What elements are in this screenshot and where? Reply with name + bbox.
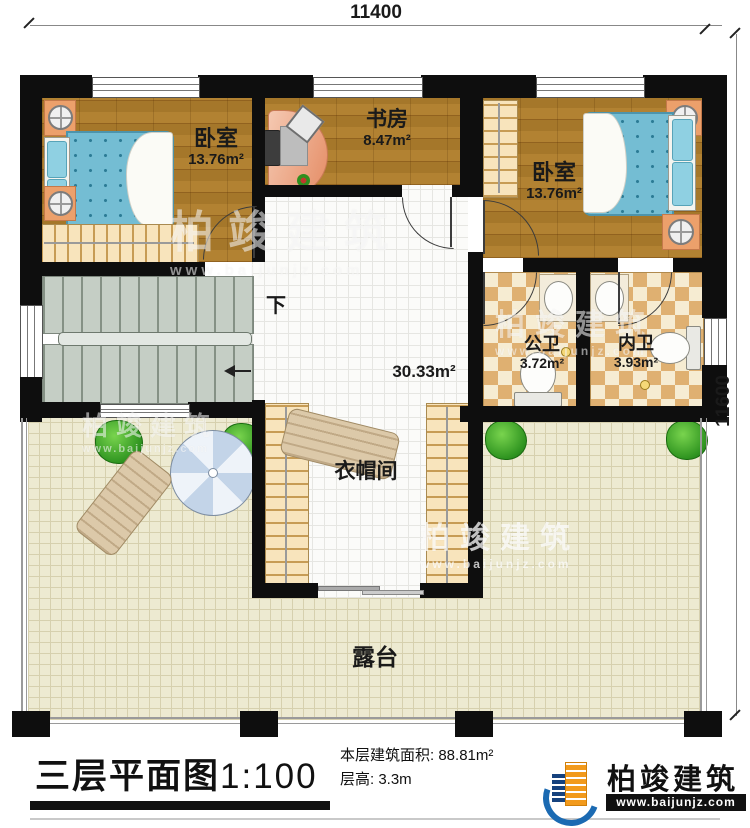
- wardrobe-bedroom-left: [40, 224, 199, 264]
- pillow: [672, 119, 693, 161]
- brand-website-bar: www.baijunjz.com: [606, 794, 746, 811]
- room-label-study: 书房 8.47m²: [328, 108, 446, 149]
- window: [536, 77, 645, 98]
- terrace-railing: [21, 717, 702, 719]
- plant-icon: [485, 420, 527, 460]
- brand-logo-icon: [543, 760, 601, 818]
- room-label-bedroom-right: 卧室 13.76m²: [494, 160, 614, 203]
- wall: [702, 98, 727, 318]
- pillow: [47, 141, 67, 178]
- wall: [643, 75, 727, 98]
- window: [100, 404, 190, 418]
- wall: [252, 185, 402, 197]
- title-underline: [30, 801, 330, 810]
- terrace-railing: [21, 418, 23, 720]
- hall-area-label: 30.33m²: [368, 362, 480, 382]
- window: [313, 77, 423, 98]
- brand-name: 柏竣建筑: [607, 756, 739, 798]
- wall: [523, 258, 618, 272]
- wall: [188, 402, 258, 418]
- floor-drain-icon: [640, 380, 650, 390]
- sink-public-bath: [544, 281, 573, 316]
- wall: [460, 98, 483, 197]
- floor-area-label: 本层建筑面积: 88.81m²: [340, 744, 493, 765]
- cloakroom-wardrobe-right: [426, 403, 470, 590]
- footer-divider: [30, 818, 720, 820]
- railing-post: [240, 711, 278, 737]
- railing-post: [455, 711, 493, 737]
- door-leaf: [253, 206, 255, 258]
- wardrobe-rail: [446, 407, 448, 584]
- wall: [252, 583, 318, 598]
- door-leaf: [483, 272, 485, 324]
- sliding-door: [362, 590, 424, 595]
- wall: [421, 75, 536, 98]
- lamp-icon: [48, 191, 73, 216]
- page-title: 三层平面图1:100: [35, 748, 318, 799]
- stairs-upper-flight: [42, 276, 254, 334]
- window: [92, 77, 200, 98]
- stairs-direction-arrow: [224, 365, 235, 377]
- window: [704, 318, 727, 367]
- door-leaf: [483, 200, 485, 254]
- stairs-down-label: 下: [262, 295, 290, 318]
- pillow: [672, 162, 693, 206]
- wall: [20, 75, 92, 98]
- wall: [252, 400, 265, 598]
- wall: [460, 406, 727, 422]
- terrace-railing: [700, 418, 702, 718]
- room-label-bedroom-left: 卧室 13.76m²: [156, 126, 276, 169]
- dimension-tick: [729, 27, 740, 38]
- lamp-icon: [48, 105, 73, 130]
- wall: [20, 402, 100, 418]
- stairs-direction-line: [233, 370, 251, 372]
- stairs-lower-flight: [42, 344, 254, 404]
- floor-plan-page: 柏竣建筑 www.baijunjz.com 柏竣建筑 www.baijunjz.…: [0, 0, 750, 828]
- floor-height-label: 层高: 3.3m: [340, 768, 412, 789]
- door-leaf: [618, 272, 620, 324]
- toilet-tank: [514, 392, 562, 407]
- wall: [468, 252, 483, 598]
- wall: [420, 583, 483, 598]
- room-label-cloakroom: 衣帽间: [300, 460, 432, 484]
- room-label-inner-bath: 内卫 3.93m²: [590, 333, 682, 370]
- dimension-line: [30, 25, 722, 26]
- terrace-railing: [21, 723, 709, 724]
- wall: [673, 258, 702, 272]
- terrace-railing: [706, 418, 707, 718]
- umbrella-pole-icon: [208, 468, 218, 478]
- dimension-tick: [729, 709, 740, 720]
- door-leaf: [450, 197, 452, 247]
- dimension-tick: [23, 17, 34, 28]
- brand-website: www.baijunjz.com: [616, 795, 736, 809]
- wall: [198, 75, 313, 98]
- railing-post: [12, 711, 50, 737]
- wardrobe-rail: [44, 242, 194, 244]
- window: [20, 305, 43, 379]
- dimension-width: 11400: [338, 2, 414, 24]
- stairs-handrail: [58, 332, 252, 346]
- dimension-height: 11600: [713, 371, 735, 431]
- dimension-line: [736, 34, 737, 716]
- terrace-railing: [26, 418, 27, 720]
- lamp-icon: [668, 219, 694, 245]
- room-label-public-bath: 公卫 3.72m²: [496, 334, 588, 371]
- scale-label: 1:100: [220, 757, 318, 796]
- room-label-terrace: 露台: [330, 644, 420, 670]
- railing-post: [684, 711, 722, 737]
- wall: [20, 262, 205, 276]
